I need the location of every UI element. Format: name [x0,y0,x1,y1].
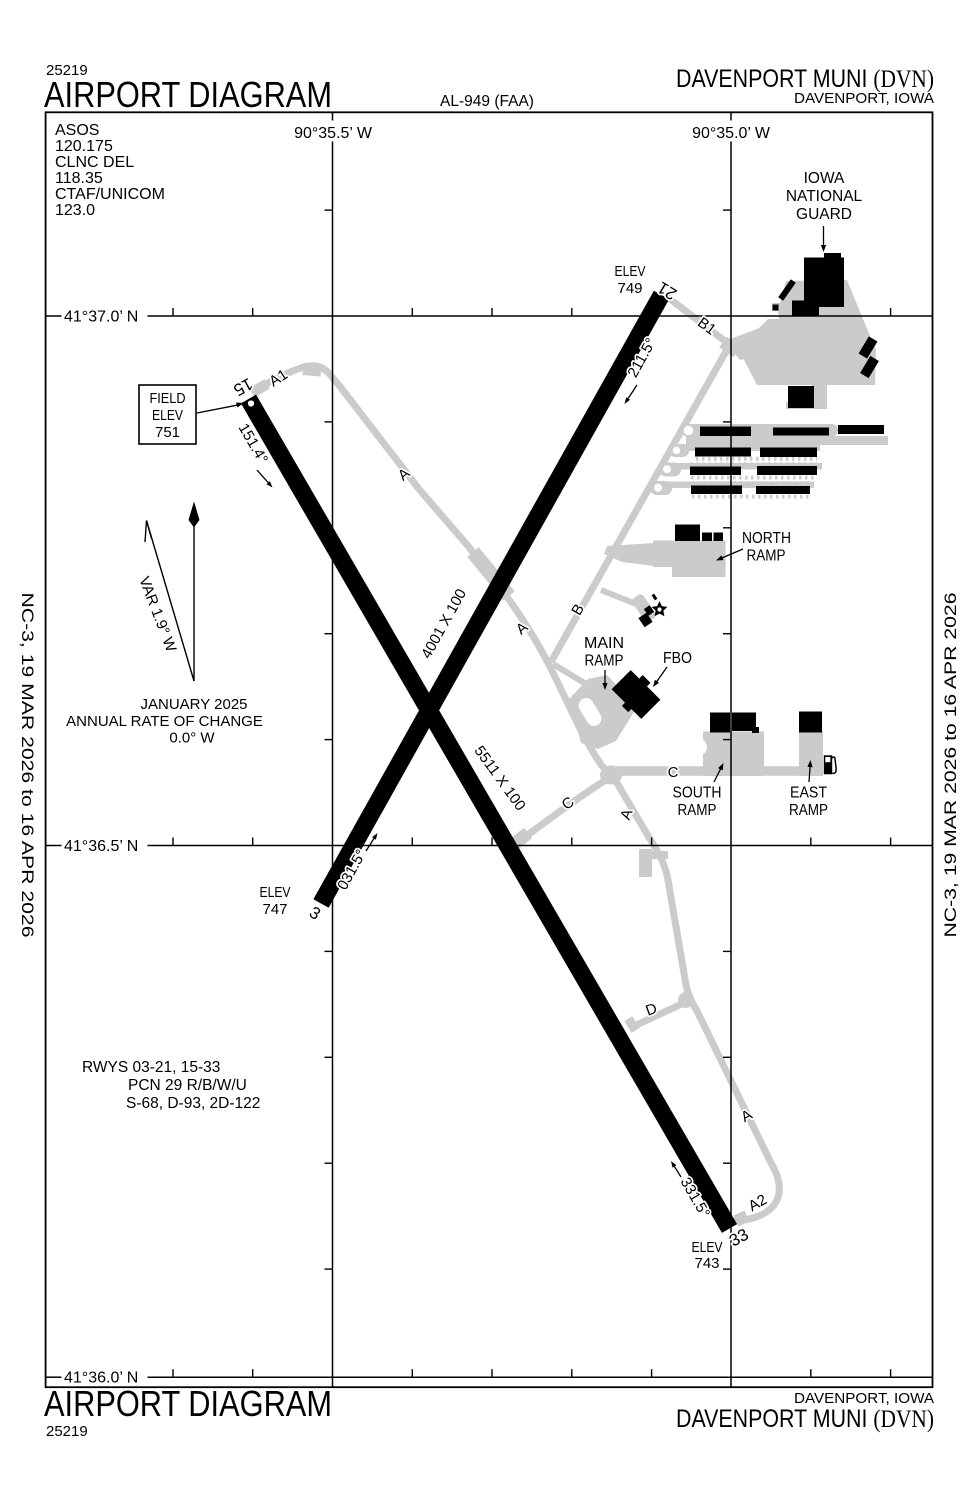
svg-text:JANUARY 2025: JANUARY 2025 [140,696,247,713]
svg-text:RWYS 03-21, 15-33: RWYS 03-21, 15-33 [82,1059,220,1076]
svg-text:FBO: FBO [663,650,692,667]
svg-text:SOUTH: SOUTH [673,785,722,802]
svg-text:NC-3, 19 MAR 2026 to 16 APR: NC-3, 19 MAR 2026 to 16 APR 2026 [941,593,960,938]
svg-text:90°35.5’ W: 90°35.5’ W [294,125,373,142]
svg-text:DAVENPORT MUNI (DVN): DAVENPORT MUNI (DVN) [676,65,934,93]
svg-text:CTAF/UNICOM: CTAF/UNICOM [55,186,165,203]
svg-text:FIELD: FIELD [150,390,186,407]
svg-text:DAVENPORT MUNI (DVN): DAVENPORT MUNI (DVN) [676,1405,934,1433]
svg-text:0.0° W: 0.0° W [169,730,215,747]
svg-text:AIRPORT DIAGRAM: AIRPORT DIAGRAM [44,1383,332,1424]
svg-text:ELEV: ELEV [260,884,291,901]
svg-text:ELEV: ELEV [152,407,183,424]
svg-text:743: 743 [695,1255,720,1272]
svg-text:IOWA: IOWA [804,170,845,187]
svg-text:41°37.0’ N: 41°37.0’ N [64,309,138,326]
svg-text:MAIN: MAIN [584,635,624,652]
svg-text:NATIONAL: NATIONAL [786,188,863,205]
svg-text:ELEV: ELEV [692,1239,723,1256]
svg-text:747: 747 [263,901,288,918]
svg-text:NC-3, 19 MAR 2026 to 16 APR: NC-3, 19 MAR 2026 to 16 APR 2026 [18,593,37,938]
svg-text:AL-949 (FAA): AL-949 (FAA) [440,93,534,110]
svg-text:123.0: 123.0 [55,202,95,219]
svg-text:GUARD: GUARD [796,206,852,223]
svg-text:118.35: 118.35 [55,170,103,187]
svg-text:90°35.0’ W: 90°35.0’ W [692,125,771,142]
svg-text:AIRPORT DIAGRAM: AIRPORT DIAGRAM [44,74,332,115]
svg-text:DAVENPORT, IOWA: DAVENPORT, IOWA [794,90,934,107]
svg-text:749: 749 [618,280,643,297]
svg-text:C: C [668,764,679,781]
svg-text:NORTH: NORTH [742,530,791,547]
svg-text:RAMP: RAMP [747,548,786,565]
svg-text:25219: 25219 [46,1423,88,1440]
svg-text:RAMP: RAMP [789,802,828,819]
svg-text:ASOS: ASOS [55,122,99,139]
svg-text:PCN 29 R/B/W/U: PCN 29 R/B/W/U [128,1077,247,1094]
svg-text:ELEV: ELEV [615,263,646,280]
svg-text:RAMP: RAMP [678,802,717,819]
svg-text:S-68, D-93, 2D-122: S-68, D-93, 2D-122 [126,1095,260,1112]
svg-text:751: 751 [155,424,180,441]
svg-text:EAST: EAST [790,785,827,802]
svg-text:RAMP: RAMP [585,653,624,670]
svg-text:120.175: 120.175 [55,138,113,155]
svg-text:CLNC DEL: CLNC DEL [55,154,134,171]
svg-text:ANNUAL RATE OF CHANGE: ANNUAL RATE OF CHANGE [66,713,263,730]
svg-text:41°36.5’ N: 41°36.5’ N [64,838,138,855]
